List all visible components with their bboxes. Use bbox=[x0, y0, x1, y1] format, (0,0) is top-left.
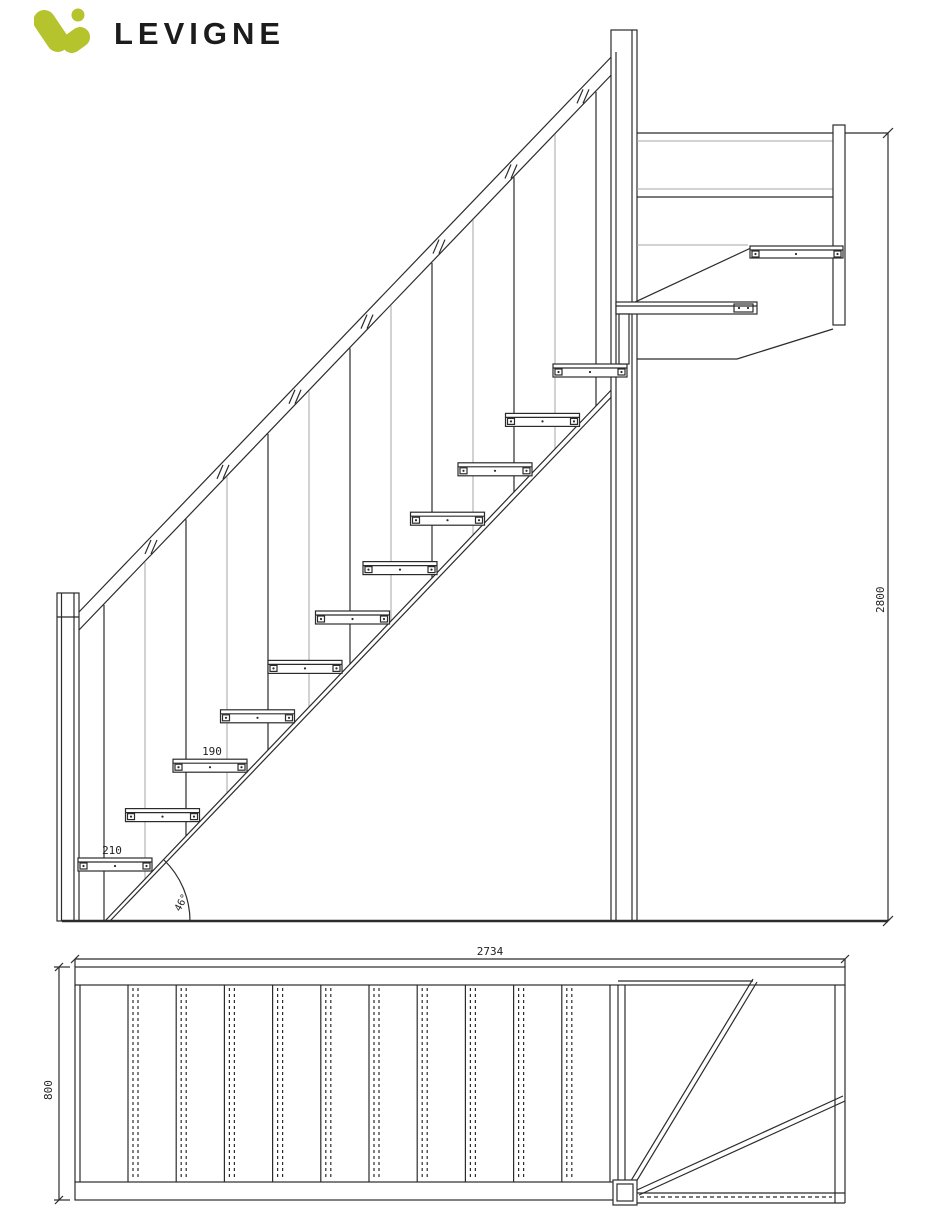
stringer bbox=[105, 385, 619, 921]
dim-mid-going-label: 190 bbox=[202, 745, 222, 758]
landing-floor-edge bbox=[637, 329, 833, 359]
winder-diagonal-upper bbox=[629, 979, 757, 1187]
dim-flight-width-label: 800 bbox=[42, 1080, 55, 1100]
dimension-total-run: 2734 bbox=[71, 945, 849, 967]
winder-diagonal-lower bbox=[637, 1096, 845, 1195]
plan-bottom-stringer bbox=[75, 1182, 618, 1200]
dim-total-run-label: 2734 bbox=[477, 945, 504, 958]
plan-top-stringer bbox=[75, 967, 845, 985]
tread bbox=[363, 562, 437, 575]
tread bbox=[458, 463, 532, 476]
rail-fastener-ticks bbox=[145, 89, 589, 554]
winder-tread-upper bbox=[633, 246, 843, 303]
tread bbox=[173, 759, 247, 772]
dimension-flight-width: 800 bbox=[42, 963, 70, 1204]
tread bbox=[553, 364, 627, 377]
landing-guardrail bbox=[637, 125, 888, 325]
tread bbox=[506, 413, 580, 426]
dim-total-rise-label: 2800 bbox=[874, 587, 887, 614]
plan-left-edge bbox=[75, 985, 80, 1182]
slope-angle: 46° bbox=[164, 860, 191, 921]
tread bbox=[268, 660, 342, 673]
treads bbox=[78, 364, 627, 871]
tread bbox=[126, 809, 200, 822]
elevation-view: 2800 46° 210 190 bbox=[57, 30, 893, 926]
plan-view: 2734 800 bbox=[42, 945, 849, 1205]
plan-winder-box bbox=[613, 979, 845, 1205]
tread bbox=[411, 512, 485, 525]
handrail bbox=[79, 52, 616, 630]
landing-post bbox=[833, 125, 845, 325]
bottom-newel-post bbox=[57, 593, 79, 921]
balusters bbox=[104, 92, 596, 920]
tread bbox=[221, 710, 295, 723]
top-newel-post bbox=[611, 30, 637, 921]
tread bbox=[78, 858, 152, 871]
tread bbox=[316, 611, 390, 624]
dimension-total-rise: 2800 bbox=[874, 128, 893, 926]
drawing-sheet: LEVIGNE bbox=[0, 0, 940, 1214]
staircase-technical-drawing: 2800 46° 210 190 2734 bbox=[0, 0, 940, 1214]
dim-bottom-going-label: 210 bbox=[102, 844, 122, 857]
plan-tread-edges bbox=[128, 985, 610, 1182]
